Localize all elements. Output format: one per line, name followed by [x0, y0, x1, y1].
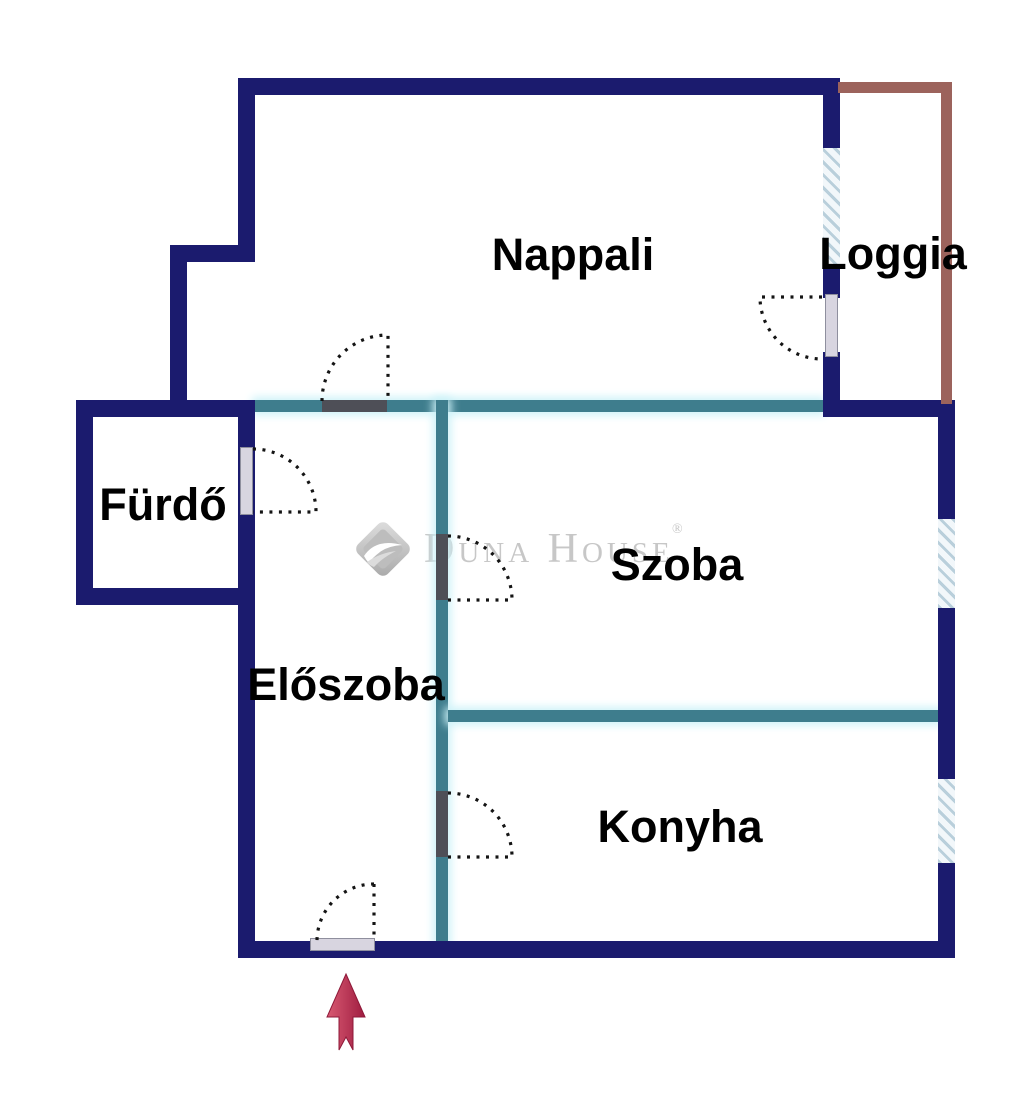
room-label-eloszoba: Előszoba [247, 659, 445, 711]
room-label-loggia: Loggia [819, 228, 966, 280]
door-arc-entrance [317, 884, 374, 941]
entrance-arrow-icon [327, 974, 365, 1050]
room-label-konyha: Konyha [597, 801, 762, 853]
door-arc-loggia [760, 297, 822, 359]
door-arc-konyha [448, 793, 512, 857]
door-arc-furdo [253, 449, 316, 512]
floorplan-canvas: Duna House ® [0, 0, 1024, 1098]
door-arc-nappali [322, 335, 388, 401]
room-label-nappali: Nappali [492, 229, 655, 281]
door-arcs-overlay [0, 0, 1024, 1098]
room-label-furdo: Fürdő [99, 479, 226, 531]
room-label-szoba: Szoba [611, 539, 744, 591]
door-arc-szoba [448, 536, 512, 600]
